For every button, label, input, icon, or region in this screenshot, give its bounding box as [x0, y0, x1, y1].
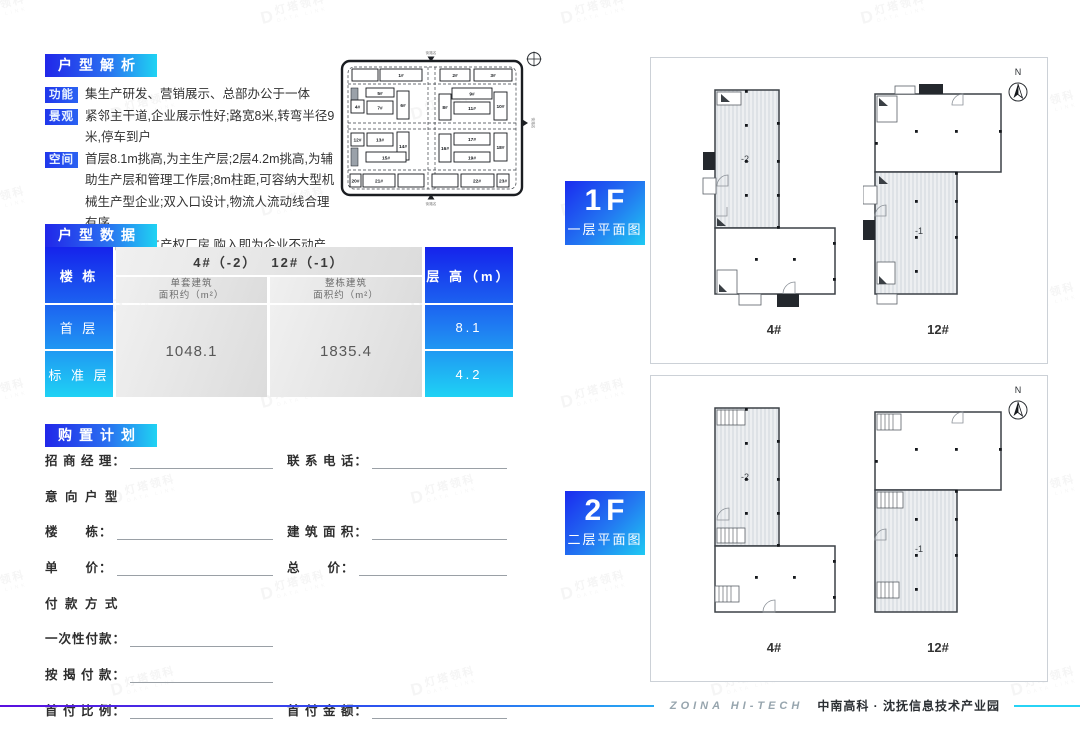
floor-badge-1f: 1F 一层平面图 [565, 181, 645, 245]
field-blank-line [372, 454, 507, 469]
form-subtitle-intent: 意 向 户 型 [45, 486, 507, 505]
stairwell [877, 582, 899, 598]
feature-row-space: 空间 首层8.1m挑高,为主生产层;2层4.2m挑高,为辅助生产层和管理工作层;… [45, 149, 337, 235]
field-label: 建 筑 面 积： [287, 521, 368, 540]
field-unit-price: 单 价： [45, 557, 273, 576]
svg-text:N: N [1015, 67, 1022, 77]
floor-badge-2f: 2F 二层平面图 [565, 491, 645, 555]
stairwell [717, 410, 745, 425]
section-title-purchase-plan: 购置计划 [45, 424, 157, 447]
subheader-line1: 整栋建筑 [325, 278, 367, 290]
site-buildings: 1# 2# 3# 5# 4# 7# 6# [350, 69, 512, 187]
floor-caption: 二层平面图 [565, 527, 645, 555]
field-total-price: 总 价： [287, 557, 507, 576]
svg-text:9#: 9# [469, 92, 475, 98]
field-label: 楼 栋： [45, 521, 113, 540]
section-title-unit-data: 户型数据 [45, 224, 157, 247]
feature-row-landscape: 景观 紧邻主干道,企业展示性好;路宽8米,转弯半径9米,停车到户 [45, 106, 337, 149]
table-span-header: 4#（-2） 12#（-1） [116, 247, 422, 275]
floor-plan-4-1f: -2 [699, 82, 849, 314]
svg-text:22#: 22# [473, 179, 481, 185]
field-mortgage: 按 揭 付 款： [45, 664, 273, 683]
svg-text:12#: 12# [353, 138, 361, 144]
svg-text:街路名: 街路名 [426, 201, 437, 206]
table-row-standard-floor: 标 准 层 [45, 351, 113, 397]
svg-text:5#: 5# [377, 91, 383, 97]
field-label: 招 商 经 理： [45, 450, 126, 469]
field-blank-line [130, 454, 273, 469]
field-blank-line [359, 561, 507, 576]
section-title-unit-analysis: 户型解析 [45, 54, 157, 77]
table-col-height: 层 高（m） 8.1 4.2 [425, 247, 513, 397]
floor-plan-12-1f: -1 [863, 82, 1013, 314]
plan-caption-4: 4# [699, 322, 849, 337]
table-value-single-area: 1048.1 [116, 305, 267, 397]
field-label: 一次性付款： [45, 628, 126, 647]
field-blank-line [117, 561, 273, 576]
feature-row-function: 功能 集生产研发、营销展示、总部办公于一体 [45, 84, 337, 106]
field-lump-sum: 一次性付款： [45, 628, 273, 647]
table-row-first-floor: 首 层 [45, 305, 113, 349]
svg-text:15#: 15# [382, 156, 390, 162]
table-col-building: 楼 栋 首 层 标 准 层 [45, 247, 113, 397]
svg-text:19#: 19# [468, 156, 476, 162]
field-phone: 联 系 电 话： [287, 450, 507, 469]
field-area: 建 筑 面 积： [287, 521, 507, 540]
svg-text:8#: 8# [442, 105, 448, 111]
svg-text:13#: 13# [376, 138, 384, 144]
svg-text:20#: 20# [351, 179, 359, 185]
field-blank-line [117, 525, 273, 540]
page-footer: ZOINA HI-TECH 中南高科 · 沈抚信息技术产业园 [0, 697, 1080, 714]
form-subtitle-payment: 付 款 方 式 [45, 593, 507, 612]
purchase-plan-form: 招 商 经 理： 联 系 电 话： 意 向 户 型 楼 栋： 建 筑 面 积： [45, 450, 507, 738]
svg-text:18#: 18# [496, 145, 504, 151]
svg-text:10#: 10# [496, 104, 504, 110]
floor-plan-box-2f: N -2 [650, 375, 1048, 682]
svg-text:N: N [1015, 385, 1022, 395]
stairwell [877, 414, 901, 430]
field-label: 联 系 电 话： [287, 450, 368, 469]
table-value-whole-area: 1835.4 [270, 305, 422, 397]
svg-text:1#: 1# [398, 73, 404, 79]
brand-name-en: ZOINA HI-TECH [670, 700, 803, 712]
svg-text:21#: 21# [375, 179, 383, 185]
svg-text:街路名: 街路名 [531, 118, 536, 129]
footer-line [1014, 705, 1080, 707]
subheader-line2: 面积约（m²） [159, 290, 225, 302]
floor-number: 1F [565, 181, 645, 217]
plan-caption-12: 12# [863, 322, 1013, 337]
table-header-building: 楼 栋 [45, 247, 113, 303]
plan-caption-12: 12# [863, 640, 1013, 655]
feature-tag: 功能 [45, 87, 78, 103]
feature-tag: 景观 [45, 109, 78, 125]
stairwell [717, 528, 745, 543]
field-label: 总 价： [287, 557, 355, 576]
field-blank-line [372, 525, 507, 540]
brochure-page: D灯塔领科DATA LINKD灯塔领科DATA LINKD灯塔领科DATA LI… [0, 0, 1080, 738]
floor-plan-4-2f: -2 [699, 400, 849, 632]
svg-text:7#: 7# [377, 106, 383, 112]
subheader-line1: 单套建筑 [170, 278, 212, 290]
feature-text: 首层8.1m挑高,为主生产层;2层4.2m挑高,为辅助生产层和管理工作层;8m柱… [85, 149, 337, 235]
table-value-height-first: 8.1 [425, 305, 513, 349]
table-subheader-whole: 整栋建筑 面积约（m²） [270, 277, 422, 303]
subheader-line2: 面积约（m²） [313, 290, 379, 302]
feature-tag: 空间 [45, 152, 78, 168]
feature-text: 集生产研发、营销展示、总部办公于一体 [85, 84, 310, 106]
svg-text:4#: 4# [355, 105, 361, 111]
field-label: 单 价： [45, 557, 113, 576]
survey-compass-icon [527, 52, 542, 67]
svg-text:23#: 23# [499, 179, 507, 185]
stairwell [877, 492, 903, 508]
unit-data-table: 楼 栋 首 层 标 准 层 4#（-2） 12#（-1） 单套建筑 面积约（m²… [45, 247, 513, 397]
site-plan-map: 1# 2# 3# 5# 4# 7# 6# [336, 46, 548, 210]
svg-text:16#: 16# [441, 146, 449, 152]
stairwell [715, 586, 739, 602]
floor-plan-12-2f: -1 [863, 400, 1013, 632]
svg-text:11#: 11# [468, 106, 476, 112]
svg-text:6#: 6# [400, 103, 406, 109]
brand-name-cn: 中南高科 · 沈抚信息技术产业园 [817, 697, 1000, 714]
feature-text: 紧邻主干道,企业展示性好;路宽8米,转弯半径9米,停车到户 [85, 106, 337, 149]
floor-number: 2F [565, 491, 645, 527]
svg-text:14#: 14# [399, 144, 407, 150]
svg-text:17#: 17# [468, 137, 476, 143]
svg-text:-1: -1 [915, 544, 923, 554]
svg-text:3#: 3# [490, 73, 496, 79]
svg-text:街路名: 街路名 [426, 50, 437, 55]
field-blank-line [130, 668, 273, 683]
field-label: 按 揭 付 款： [45, 664, 126, 683]
field-blank-line [130, 632, 273, 647]
plan-caption-4: 4# [699, 640, 849, 655]
table-header-height: 层 高（m） [425, 247, 513, 303]
svg-text:-1: -1 [915, 226, 923, 236]
svg-text:2#: 2# [452, 73, 458, 79]
table-value-height-standard: 4.2 [425, 351, 513, 397]
footer-line [0, 705, 654, 707]
table-subheader-single: 单套建筑 面积约（m²） [116, 277, 267, 303]
floor-plan-box-1f: N -2 [650, 57, 1048, 364]
field-building: 楼 栋： [45, 521, 273, 540]
floor-caption: 一层平面图 [565, 217, 645, 245]
field-manager: 招 商 经 理： [45, 450, 273, 469]
